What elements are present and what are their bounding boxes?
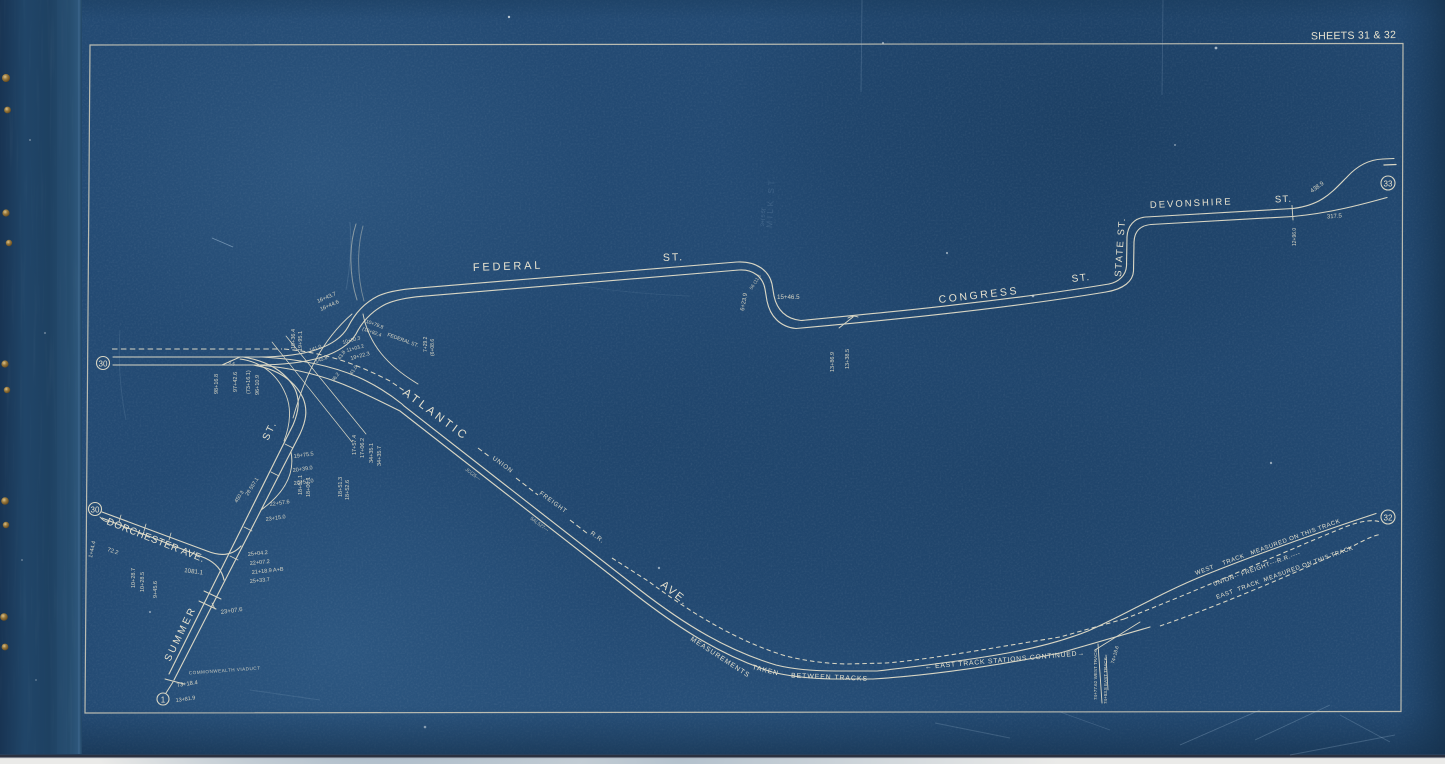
svg-text:15+46.5: 15+46.5 — [777, 294, 800, 301]
svg-text:ST.: ST. — [1275, 194, 1293, 206]
svg-text:74+83.8 EAST TRACK: 74+83.8 EAST TRACK — [1103, 656, 1108, 704]
svg-text:13+86.9: 13+86.9 — [830, 352, 836, 372]
svg-text:98+16.8: 98+16.8 — [214, 374, 220, 394]
svg-text:FEDERAL: FEDERAL — [473, 260, 544, 274]
svg-text:32: 32 — [1384, 514, 1393, 523]
svg-text:(73+16.1): (73+16.1) — [246, 370, 252, 394]
svg-text:17+57.4: 17+57.4 — [352, 435, 358, 455]
svg-text:18+52.6: 18+52.6 — [345, 480, 351, 500]
svg-text:30: 30 — [91, 506, 100, 515]
svg-text:18+51.3: 18+51.3 — [338, 477, 344, 497]
svg-text:3+(.5 5(: 3+(.5 5( — [760, 208, 767, 226]
svg-text:74+77.62 WEST TRACK: 74+77.62 WEST TRACK — [1093, 649, 1098, 700]
svg-text:96+10.9: 96+10.9 — [255, 375, 261, 395]
svg-text:ST.: ST. — [1071, 272, 1091, 285]
svg-text:19+36.4: 19+36.4 — [291, 329, 297, 349]
svg-text:33: 33 — [1384, 180, 1393, 189]
svg-text:12+96.0: 12+96.0 — [1292, 228, 1298, 246]
svg-text:7+29.2: 7+29.2 — [423, 336, 429, 352]
svg-text:ST.: ST. — [663, 251, 685, 264]
svg-text:317.5: 317.5 — [1327, 213, 1343, 220]
svg-text:(6+08.6: (6+08.6 — [430, 339, 436, 356]
svg-text:10+28.7: 10+28.7 — [131, 568, 137, 588]
svg-text:30: 30 — [99, 360, 108, 369]
svg-text:34+35.7: 34+35.7 — [377, 446, 383, 466]
svg-text:1: 1 — [161, 696, 166, 705]
svg-text:17+06.2: 17+06.2 — [360, 438, 366, 458]
svg-text:19+95.1: 19+95.1 — [298, 331, 304, 351]
svg-text:10+28.5: 10+28.5 — [140, 572, 146, 592]
svg-text:9+45.6: 9+45.6 — [153, 581, 159, 598]
svg-text:13+38.5: 13+38.5 — [845, 349, 851, 369]
svg-text:97+42.6: 97+42.6 — [233, 372, 239, 392]
svg-text:34+35.1: 34+35.1 — [369, 443, 375, 463]
svg-text:SHEETS 31 & 32: SHEETS 31 & 32 — [1311, 29, 1397, 42]
